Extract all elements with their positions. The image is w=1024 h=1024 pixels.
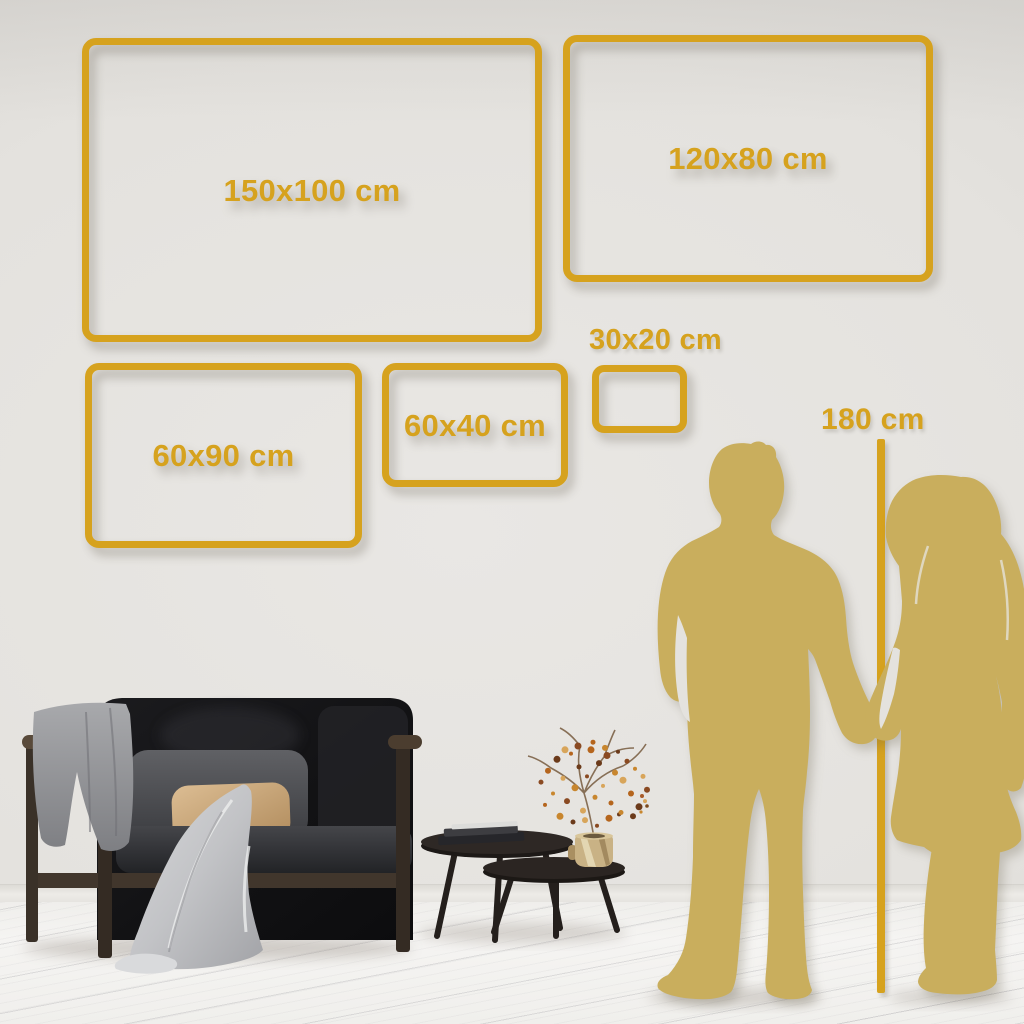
couple-silhouette <box>657 441 1024 999</box>
size-guide-scene: 150x100 cm 120x80 cm 60x90 cm 60x40 cm 3… <box>0 0 1024 1024</box>
berries <box>539 740 651 828</box>
sofa <box>22 698 422 974</box>
fallen-berries <box>639 794 648 814</box>
throw-blanket <box>33 703 133 851</box>
man-silhouette <box>657 441 878 999</box>
woman-silhouette <box>865 475 1024 994</box>
scene-art <box>0 0 1024 1024</box>
